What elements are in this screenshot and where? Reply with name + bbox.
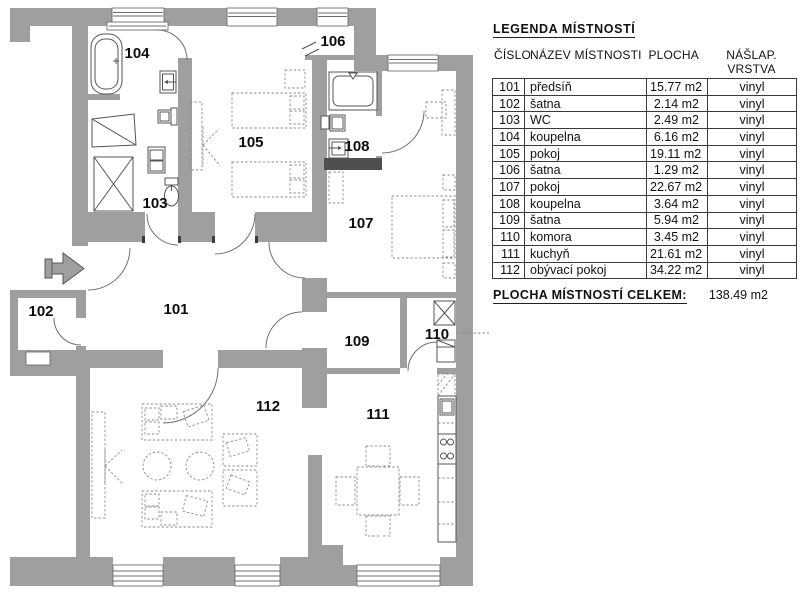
wall-break-icon bbox=[302, 42, 319, 56]
legend-cell-layer: vinyl bbox=[708, 245, 797, 262]
coffee-table-icon bbox=[143, 452, 171, 480]
room-label-103: 103 bbox=[142, 195, 167, 212]
nightstand bbox=[443, 263, 455, 278]
room-112-furniture bbox=[92, 404, 257, 527]
legend-row: 105pokoj19.11 m2vinyl bbox=[493, 145, 797, 162]
vent-shaft-icon bbox=[434, 301, 455, 325]
legend-cell-layer: vinyl bbox=[708, 162, 797, 179]
sofa-set-icon bbox=[142, 491, 212, 527]
legend-cell-layer: vinyl bbox=[708, 262, 797, 279]
legend-cell-name: šatna bbox=[525, 212, 647, 229]
legend-cell-layer: vinyl bbox=[708, 229, 797, 246]
door-102 bbox=[54, 318, 81, 345]
legend-cell-name: pokoj bbox=[525, 179, 647, 196]
legend-cell-layer: vinyl bbox=[708, 145, 797, 162]
nightstand bbox=[443, 175, 455, 190]
legend-cell-area: 2.14 m2 bbox=[647, 95, 708, 112]
legend-row: 108koupelna3.64 m2vinyl bbox=[493, 195, 797, 212]
col-header-number: ČÍSLO bbox=[492, 48, 524, 76]
room-107-furniture bbox=[329, 90, 455, 278]
legend-cell-name: koupelna bbox=[525, 195, 647, 212]
door-107 bbox=[269, 242, 305, 278]
col-header-name: NÁZEV MÍSTNOSTI bbox=[524, 48, 646, 76]
legend-cell-number: 110 bbox=[493, 229, 525, 246]
sofa-set-icon bbox=[142, 404, 212, 440]
nightstand bbox=[285, 70, 305, 88]
legend-cell-number: 107 bbox=[493, 179, 525, 196]
legend-row: 112obývací pokoj34.22 m2vinyl bbox=[493, 262, 797, 279]
legend-cell-area: 5.94 m2 bbox=[647, 212, 708, 229]
legend-cell-layer: vinyl bbox=[708, 112, 797, 129]
shaft-x-icon bbox=[94, 157, 133, 211]
total-value: 138.49 m2 bbox=[709, 288, 768, 302]
legend-cell-area: 22.67 m2 bbox=[647, 179, 708, 196]
legend-cell-name: kuchyň bbox=[525, 245, 647, 262]
legend-row: 107pokoj22.67 m2vinyl bbox=[493, 179, 797, 196]
legend-row: 110komora3.45 m2vinyl bbox=[493, 229, 797, 246]
room-label-102: 102 bbox=[28, 303, 53, 320]
wall-layer bbox=[10, 8, 473, 586]
legend-table-body: 101předsíň15.77 m2vinyl102šatna2.14 m2vi… bbox=[493, 79, 797, 279]
legend-cell-layer: vinyl bbox=[708, 212, 797, 229]
legend-cell-name: předsíň bbox=[525, 79, 647, 96]
double-bed-icon bbox=[232, 93, 306, 128]
bathtub-icon bbox=[91, 34, 122, 94]
water-heater-icon bbox=[437, 340, 455, 362]
room-label-110: 110 bbox=[425, 326, 449, 343]
floorplan-drawing: 101 102 103 104 105 106 107 108 109 110 … bbox=[0, 0, 490, 600]
legend-row: 103WC2.49 m2vinyl bbox=[493, 112, 797, 129]
legend-row: 102šatna2.14 m2vinyl bbox=[493, 95, 797, 112]
legend-cell-name: komora bbox=[525, 229, 647, 246]
legend-cell-number: 102 bbox=[493, 95, 525, 112]
legend-cell-name: pokoj bbox=[525, 145, 647, 162]
legend-cell-name: šatna bbox=[525, 95, 647, 112]
coffee-table-icon bbox=[186, 452, 214, 480]
room-label-105: 105 bbox=[238, 134, 263, 151]
legend-cell-area: 19.11 m2 bbox=[647, 145, 708, 162]
legend-cell-area: 15.77 m2 bbox=[647, 79, 708, 96]
legend-cell-number: 101 bbox=[493, 79, 525, 96]
room-label-111: 111 bbox=[366, 406, 389, 423]
floorplan-sheet: 101 102 103 104 105 106 107 108 109 110 … bbox=[0, 0, 800, 600]
legend-cell-area: 2.49 m2 bbox=[647, 112, 708, 129]
legend-cell-name: obývací pokoj bbox=[525, 262, 647, 279]
legend-cell-layer: vinyl bbox=[708, 195, 797, 212]
legend-row: 106šatna1.29 m2vinyl bbox=[493, 162, 797, 179]
room-label-108: 108 bbox=[344, 138, 369, 155]
double-bed-icon bbox=[232, 162, 306, 197]
legend-cell-layer: vinyl bbox=[708, 95, 797, 112]
legend-cell-name: WC bbox=[525, 112, 647, 129]
col-header-layer: NÁŠLAP. VRSTVA bbox=[707, 48, 796, 76]
door-103 bbox=[147, 214, 178, 245]
wardrobe-icon bbox=[329, 172, 343, 203]
legend-cell-number: 108 bbox=[493, 195, 525, 212]
legend-cell-number: 104 bbox=[493, 129, 525, 146]
legend-cell-layer: vinyl bbox=[708, 129, 797, 146]
niche bbox=[26, 352, 50, 365]
door-110 bbox=[408, 342, 437, 371]
legend-cell-number: 105 bbox=[493, 145, 525, 162]
hatch-box bbox=[438, 374, 455, 396]
legend-table: 101předsíň15.77 m2vinyl102šatna2.14 m2vi… bbox=[492, 78, 797, 279]
room-label-106: 106 bbox=[320, 33, 345, 50]
legend-row: 111kuchyň21.61 m2vinyl bbox=[493, 245, 797, 262]
legend-cell-area: 34.22 m2 bbox=[647, 262, 708, 279]
legend-cell-number: 112 bbox=[493, 262, 525, 279]
legend-cell-number: 111 bbox=[493, 245, 525, 262]
legend-cell-area: 21.61 m2 bbox=[647, 245, 708, 262]
legend-cell-number: 106 bbox=[493, 162, 525, 179]
kitchen-counter-icon bbox=[438, 396, 456, 542]
legend-cell-layer: vinyl bbox=[708, 179, 797, 196]
toilet-icon bbox=[158, 108, 177, 125]
room-label-109: 109 bbox=[344, 333, 369, 350]
room-legend: LEGENDA MÍSTNOSTÍ ČÍSLO NÁZEV MÍSTNOSTI … bbox=[492, 20, 798, 304]
legend-cell-area: 6.16 m2 bbox=[647, 129, 708, 146]
legend-cell-number: 109 bbox=[493, 212, 525, 229]
armchair-icon bbox=[223, 434, 257, 466]
legend-header: ČÍSLO NÁZEV MÍSTNOSTI PLOCHA NÁŠLAP. VRS… bbox=[492, 48, 798, 76]
wardrobe-icon bbox=[442, 90, 455, 135]
entrance-door bbox=[88, 248, 130, 290]
legend-total: PLOCHA MÍSTNOSTÍ CELKEM: 138.49 m2 bbox=[492, 288, 798, 304]
room-label-107: 107 bbox=[348, 215, 373, 232]
legend-row: 109šatna5.94 m2vinyl bbox=[493, 212, 797, 229]
door-105 bbox=[215, 214, 255, 254]
legend-cell-area: 1.29 m2 bbox=[647, 162, 708, 179]
double-bed-icon bbox=[392, 196, 455, 258]
cabinet-icon bbox=[92, 114, 136, 147]
door-112 bbox=[163, 368, 218, 423]
legend-cell-area: 3.64 m2 bbox=[647, 195, 708, 212]
shower-icon bbox=[329, 72, 377, 110]
legend-cell-name: koupelna bbox=[525, 129, 647, 146]
legend-cell-number: 103 bbox=[493, 112, 525, 129]
legend-cell-name: šatna bbox=[525, 162, 647, 179]
door-109 bbox=[266, 312, 302, 348]
total-label: PLOCHA MÍSTNOSTÍ CELKEM: bbox=[493, 288, 687, 304]
dresser-icon bbox=[148, 147, 165, 173]
door-104 bbox=[157, 30, 187, 60]
room-label-112: 112 bbox=[256, 398, 280, 415]
washing-machine-icon bbox=[321, 115, 345, 131]
armchair-icon bbox=[223, 470, 257, 506]
legend-cell-layer: vinyl bbox=[708, 79, 797, 96]
col-header-area: PLOCHA bbox=[646, 48, 707, 76]
legend-cell-area: 3.45 m2 bbox=[647, 229, 708, 246]
room-label-104: 104 bbox=[124, 45, 150, 62]
room-label-101: 101 bbox=[163, 301, 188, 318]
dining-table-icon bbox=[336, 446, 419, 536]
entrance-arrow-icon bbox=[45, 253, 84, 284]
legend-row: 101předsíň15.77 m2vinyl bbox=[493, 79, 797, 96]
wardrobe-icon bbox=[92, 412, 105, 518]
legend-row: 104koupelna6.16 m2vinyl bbox=[493, 129, 797, 146]
door-108 bbox=[382, 111, 424, 153]
legend-title: LEGENDA MÍSTNOSTÍ bbox=[493, 22, 635, 38]
